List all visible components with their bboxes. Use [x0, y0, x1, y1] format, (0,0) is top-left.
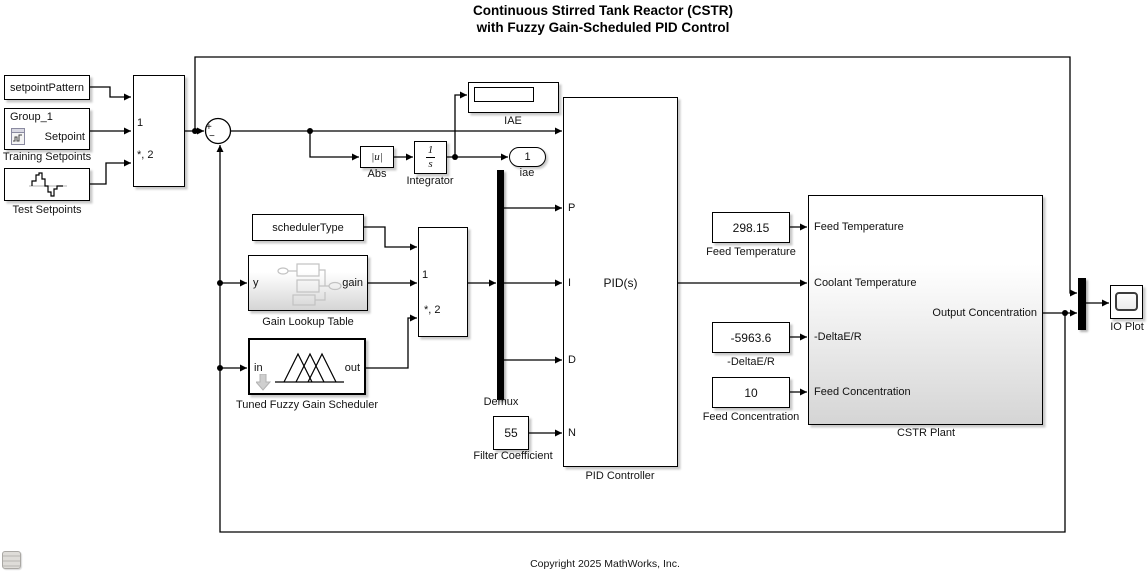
- annotation-badge-icon[interactable]: [2, 551, 21, 569]
- scheduler-type-text: schedulerType: [253, 215, 363, 240]
- staircase-signal-icon: [29, 172, 69, 199]
- sum-block[interactable]: [205, 118, 231, 144]
- signal-group-name: Group_1: [10, 111, 53, 123]
- fuzzy-in-port: in: [254, 362, 263, 374]
- training-setpoints-label: Training Setpoints: [3, 151, 91, 163]
- setpoint-pattern-block[interactable]: setpointPattern: [4, 75, 90, 100]
- delta-e-r-value: -5963.6: [713, 323, 789, 352]
- mux-block[interactable]: [1078, 278, 1086, 330]
- setpoint-switch-block[interactable]: [133, 75, 185, 187]
- cstr-in-delta-e-r: -DeltaE/R: [814, 331, 862, 343]
- demux-block[interactable]: [497, 170, 504, 400]
- gain-switch-port1-label: 1: [422, 269, 428, 281]
- cstr-plant-block[interactable]: Feed Temperature Coolant Temperature -De…: [808, 195, 1043, 425]
- scope-screen-icon: [1115, 292, 1138, 311]
- filter-coefficient-label: Filter Coefficient: [473, 450, 552, 462]
- gain-switch-default-label: *, 2: [424, 304, 441, 316]
- model-title-line2: with Fuzzy Gain-Scheduled PID Control: [330, 20, 876, 35]
- fuzzy-scheduler-block[interactable]: in out: [248, 338, 366, 395]
- feed-concentration-value: 10: [713, 378, 789, 407]
- filter-coefficient-block[interactable]: 55: [493, 416, 529, 450]
- abs-block[interactable]: |u|: [360, 146, 394, 168]
- io-plot-scope-block[interactable]: [1110, 285, 1143, 319]
- abs-label: Abs: [368, 168, 387, 180]
- iae-outport-number: 1: [510, 148, 545, 166]
- abs-text: |u|: [361, 147, 393, 167]
- cstr-in-feed-concentration: Feed Concentration: [814, 386, 911, 398]
- model-title-line1: Continuous Stirred Tank Reactor (CSTR): [330, 3, 876, 18]
- pid-port-i: I: [568, 277, 571, 289]
- copyright-text: Copyright 2025 MathWorks, Inc.: [530, 558, 680, 570]
- feed-temperature-block[interactable]: 298.15: [712, 212, 790, 243]
- pid-controller-label: PID Controller: [585, 470, 654, 482]
- feed-temperature-label: Feed Temperature: [706, 246, 796, 258]
- io-plot-label: IO Plot: [1110, 321, 1144, 333]
- update-arrow-icon: [256, 374, 271, 391]
- pid-port-d: D: [568, 354, 576, 366]
- iae-display-block[interactable]: [468, 82, 559, 113]
- integrator-numerator: 1: [428, 145, 434, 156]
- pid-text: PID(s): [564, 276, 677, 290]
- gain-lookup-out-port: gain: [342, 277, 363, 289]
- feed-temperature-value: 298.15: [713, 213, 789, 242]
- gain-lookup-table-block[interactable]: y gain: [248, 255, 368, 311]
- display-value-box: [474, 87, 534, 102]
- fuzzy-scheduler-label: Tuned Fuzzy Gain Scheduler: [236, 399, 378, 411]
- test-setpoints-label: Test Setpoints: [12, 204, 81, 216]
- pid-port-n: N: [568, 427, 576, 439]
- cstr-out-output-concentration: Output Concentration: [932, 307, 1037, 319]
- training-setpoints-block[interactable]: Group_1 Setpoint: [4, 108, 90, 150]
- integrator-label: Integrator: [406, 175, 453, 187]
- delta-e-r-label: -DeltaE/R: [727, 356, 775, 368]
- gain-switch-block[interactable]: [418, 227, 468, 337]
- pid-port-p: P: [568, 202, 575, 214]
- filter-coefficient-value: 55: [494, 417, 528, 449]
- setpoint-pattern-text: setpointPattern: [5, 76, 89, 99]
- simulink-model-canvas: Continuous Stirred Tank Reactor (CSTR) w…: [0, 0, 1148, 573]
- cstr-plant-label: CSTR Plant: [897, 427, 955, 439]
- demux-label: Demux: [484, 396, 519, 408]
- fuzzy-membership-icon: [272, 350, 352, 388]
- iae-display-label: IAE: [504, 115, 522, 127]
- signal-builder-icon: [11, 128, 26, 146]
- scheduler-type-block[interactable]: schedulerType: [252, 214, 364, 241]
- feed-concentration-label: Feed Concentration: [703, 411, 800, 423]
- pid-controller-block[interactable]: PID(s) P I D N: [563, 97, 678, 467]
- gain-lookup-in-port: y: [253, 277, 259, 289]
- setpoint-switch-default-label: *, 2: [137, 149, 154, 161]
- iae-outport-label: iae: [520, 167, 535, 179]
- fuzzy-out-port: out: [345, 362, 360, 374]
- cstr-in-feed-temperature: Feed Temperature: [814, 221, 904, 233]
- iae-outport-block[interactable]: 1: [509, 147, 546, 167]
- integrator-denominator: s: [428, 159, 432, 170]
- setpoint-outport-label: Setpoint: [45, 131, 85, 143]
- test-setpoints-block[interactable]: [4, 168, 90, 201]
- feed-concentration-block[interactable]: 10: [712, 377, 790, 408]
- lookup-subsystem-icon: [275, 261, 345, 307]
- setpoint-switch-port1-label: 1: [137, 117, 143, 129]
- delta-e-r-block[interactable]: -5963.6: [712, 322, 790, 353]
- gain-lookup-label: Gain Lookup Table: [262, 316, 354, 328]
- integrator-block[interactable]: 1 s: [414, 141, 447, 174]
- cstr-in-coolant-temperature: Coolant Temperature: [814, 277, 917, 289]
